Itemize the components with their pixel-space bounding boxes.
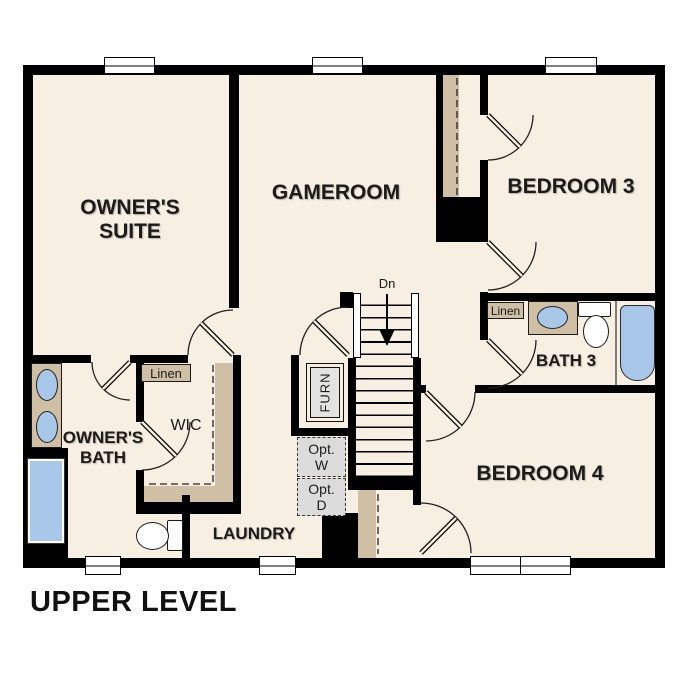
window-top-1 bbox=[104, 57, 155, 74]
wall-furn-bottom bbox=[291, 428, 356, 436]
floor-title: UPPER LEVEL bbox=[30, 586, 237, 619]
wall-wic-right bbox=[233, 355, 241, 514]
bath3-linen-closet: Linen bbox=[487, 302, 524, 319]
stair-rail-left bbox=[353, 293, 361, 358]
optional-dryer-line2: D bbox=[316, 497, 326, 513]
optional-dryer-line1: Opt. bbox=[308, 481, 334, 497]
optional-washer-line2: W bbox=[315, 457, 328, 473]
window-top-3 bbox=[545, 57, 597, 74]
window-bottom-3a bbox=[470, 556, 521, 575]
optional-dryer: Opt. D bbox=[297, 478, 346, 516]
owners-bath-line2: BATH bbox=[43, 448, 163, 468]
wic-shelf-right bbox=[215, 363, 233, 502]
room-label-owners-bath: OWNER'S BATH bbox=[43, 428, 163, 467]
wall-outer-right bbox=[655, 65, 665, 568]
wall-laundry-left bbox=[182, 495, 190, 558]
window-bottom-1 bbox=[85, 556, 121, 575]
staircase-treads bbox=[356, 294, 413, 478]
wall-furn-left bbox=[291, 355, 299, 436]
wall-suite-gameroom bbox=[229, 65, 239, 308]
bath3-toilet-bowl bbox=[583, 315, 609, 348]
owners-suite-line1: OWNER'S bbox=[50, 196, 210, 220]
bath3-tub bbox=[620, 305, 655, 381]
wall-suite-south-b bbox=[130, 355, 188, 363]
optional-washer-line1: Opt. bbox=[308, 441, 334, 457]
wall-stair-left bbox=[348, 358, 356, 490]
owners-suite-line2: SUITE bbox=[50, 220, 210, 244]
floor-title-text: UPPER LEVEL bbox=[30, 586, 237, 618]
floor-plan: Linen Linen FURN Opt. W Opt. D bbox=[0, 0, 687, 687]
furnace-unit-inner: FURN bbox=[310, 367, 340, 418]
bath3-linen-label: Linen bbox=[491, 304, 520, 318]
wic-linen-closet: Linen bbox=[141, 364, 191, 382]
wall-chase-block bbox=[436, 197, 488, 242]
window-top-2 bbox=[312, 57, 363, 74]
wall-suite-south-a bbox=[23, 355, 91, 363]
wall-bedroom4-top-a bbox=[413, 385, 426, 393]
gameroom-text: GAMEROOM bbox=[272, 181, 400, 204]
laundry-text: LAUNDRY bbox=[213, 524, 295, 543]
window-bottom-2 bbox=[259, 556, 296, 575]
wic-linen-label: Linen bbox=[150, 366, 182, 381]
owners-bath-toilet-bowl bbox=[136, 522, 169, 550]
owners-bath-line1: OWNER'S bbox=[43, 428, 163, 448]
bedroom4-text: BEDROOM 4 bbox=[476, 462, 603, 485]
wall-hall-stub bbox=[340, 292, 353, 308]
stairs-dn-text: Dn bbox=[379, 276, 396, 291]
furnace-label: FURN bbox=[318, 372, 333, 412]
room-label-bath3: BATH 3 bbox=[516, 351, 616, 371]
stairs-direction-label: Dn bbox=[372, 277, 402, 292]
room-label-wic: WIC bbox=[163, 417, 209, 435]
bath3-text: BATH 3 bbox=[536, 351, 596, 370]
room-label-owners-suite: OWNER'S SUITE bbox=[50, 196, 210, 244]
bedroom3-text: BEDROOM 3 bbox=[507, 175, 634, 198]
room-label-laundry: LAUNDRY bbox=[194, 524, 314, 544]
furnace-unit: FURN bbox=[306, 363, 344, 422]
room-label-gameroom: GAMEROOM bbox=[246, 181, 426, 205]
bedroom3-closet-shelf bbox=[443, 72, 459, 197]
owners-bath-toilet-tank bbox=[167, 520, 183, 551]
bath3-sink bbox=[537, 306, 568, 329]
owners-bath-sink-1 bbox=[36, 369, 58, 401]
room-label-bedroom4: BEDROOM 4 bbox=[450, 462, 630, 486]
wall-bedroom4-top-b bbox=[475, 385, 665, 393]
room-label-bedroom3: BEDROOM 3 bbox=[481, 175, 661, 199]
shower bbox=[28, 459, 64, 543]
bedroom4-closet-shelf bbox=[358, 490, 376, 558]
optional-washer: Opt. W bbox=[297, 437, 346, 477]
wall-bedroom3-stub-upper bbox=[480, 65, 488, 115]
window-bottom-3b bbox=[520, 556, 571, 575]
stair-rail-right bbox=[411, 293, 419, 358]
wall-block-laundry bbox=[322, 513, 358, 558]
wall-bath3-top bbox=[480, 293, 665, 301]
wall-stair-bottom bbox=[348, 477, 421, 490]
wic-text: WIC bbox=[170, 417, 201, 434]
